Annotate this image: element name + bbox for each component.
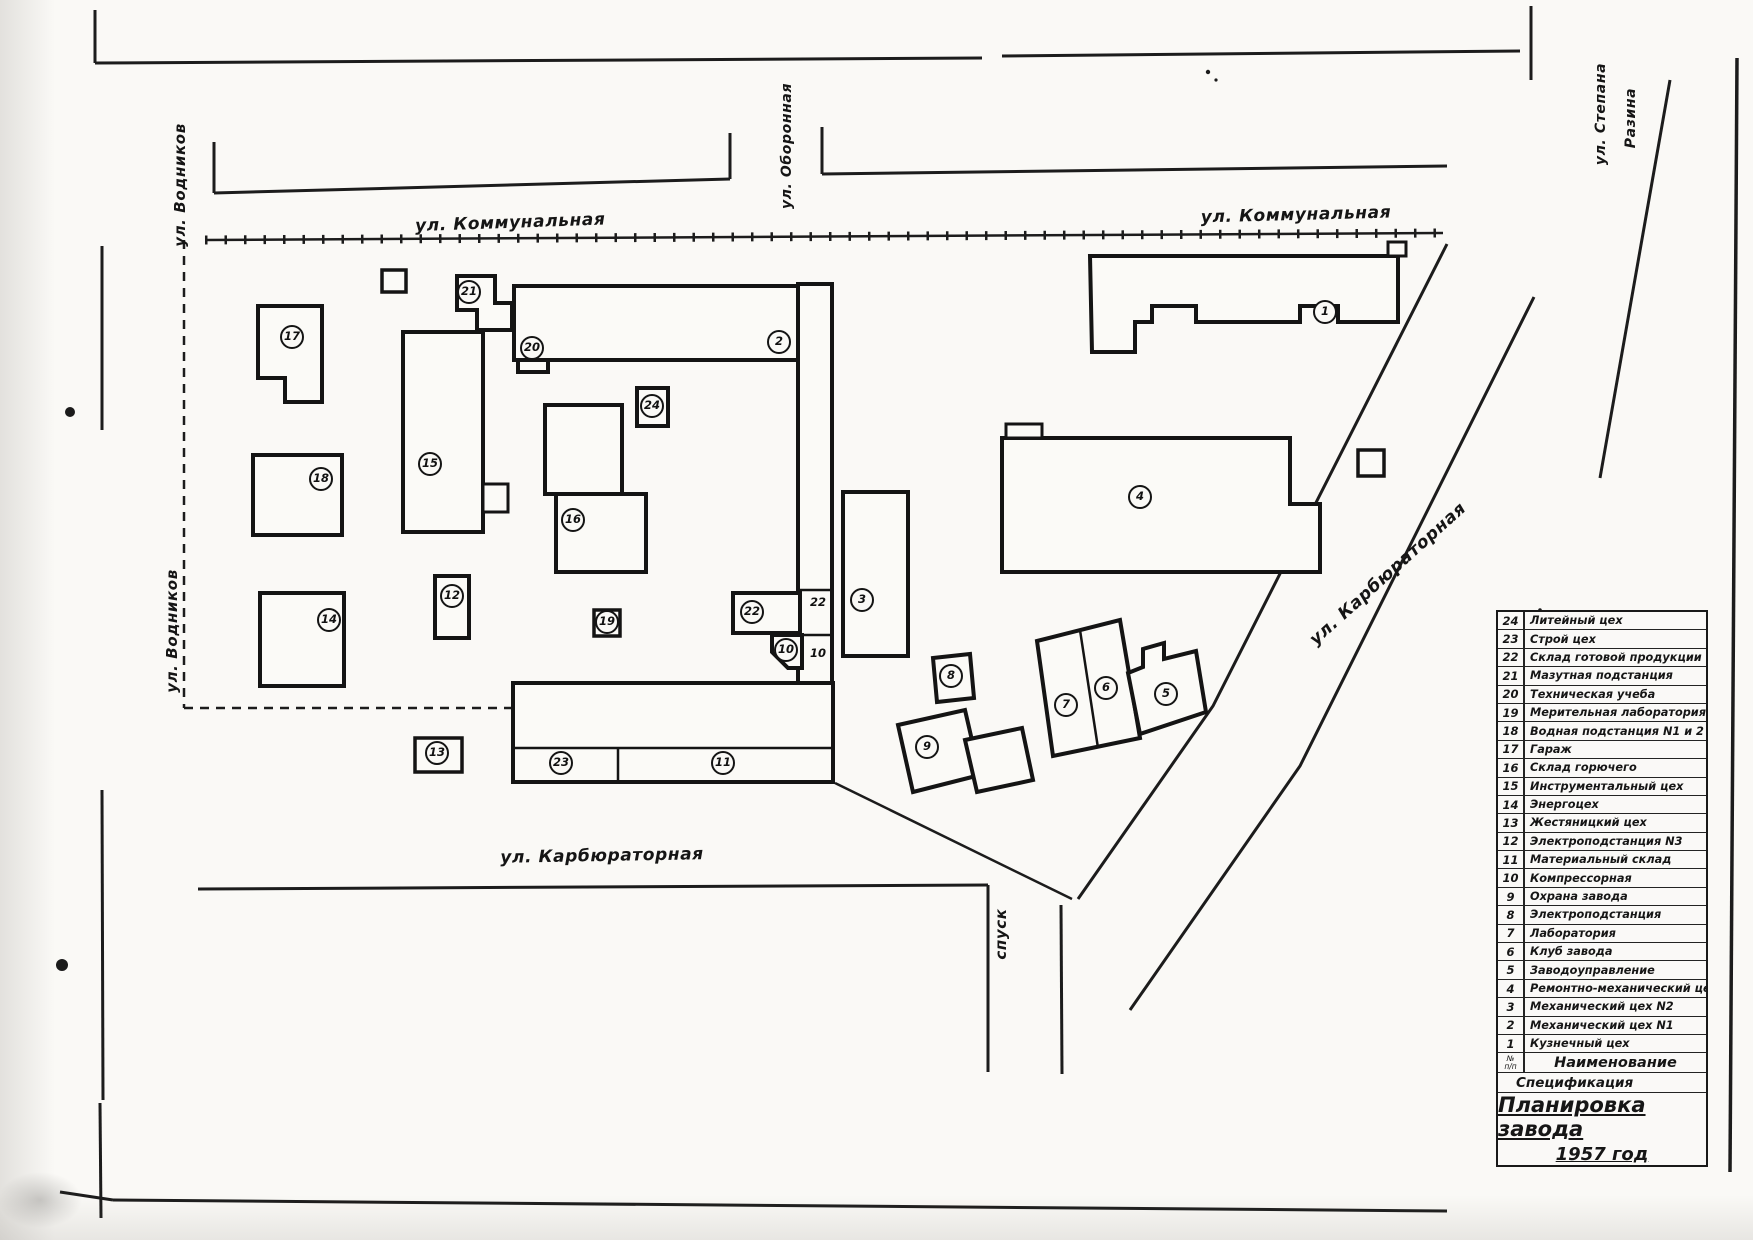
legend-row-14: 14Энергоцех (1498, 796, 1706, 814)
building-number-marker-10: 10 (774, 638, 798, 662)
legend-row-number: 6 (1498, 943, 1525, 960)
building-number-marker-21: 21 (457, 280, 481, 304)
legend-row-11: 11Материальный склад (1498, 851, 1706, 869)
building-18 (253, 455, 342, 535)
legend-row-label: Склад готовой продукции (1525, 649, 1706, 666)
building-1-forge (1090, 256, 1398, 352)
building-9-guard-b (965, 728, 1033, 792)
legend-rows: 24Литейный цех23Строй цех22Склад готовой… (1498, 612, 1706, 1053)
legend-row-number: 19 (1498, 704, 1525, 721)
building-number-marker-13: 13 (425, 741, 449, 765)
building-number-marker-14: 14 (317, 608, 341, 632)
legend-row-21: 21Мазутная подстанция (1498, 667, 1706, 685)
legend-row-number: 24 (1498, 612, 1525, 629)
legend-row-12: 12Электроподстанция N3 (1498, 833, 1706, 851)
legend-row-label: Заводоуправление (1525, 961, 1706, 978)
building-number-marker-23: 23 (549, 751, 573, 775)
building-small-right (1358, 450, 1384, 476)
building-number-marker-20: 20 (520, 336, 544, 360)
legend-row-number: 4 (1498, 980, 1525, 997)
building-number-marker-11: 11 (711, 751, 735, 775)
legend-row-1: 1Кузнечный цех (1498, 1035, 1706, 1053)
building-3 (843, 492, 908, 656)
building-number-marker-15: 15 (418, 452, 442, 476)
legend-row-label: Энергоцех (1525, 796, 1706, 813)
legend-row-number: 21 (1498, 667, 1525, 684)
legend-row-label: Строй цех (1525, 630, 1706, 647)
street-label-vodnikov-top: ул. Водников (171, 115, 189, 255)
legend-row-23: 23Строй цех (1498, 630, 1706, 648)
legend-row-label: Техническая учеба (1525, 686, 1706, 703)
building-number-marker-22: 22 (740, 600, 764, 624)
building-number-marker-7: 7 (1054, 693, 1078, 717)
legend-row-label: Мазутная подстанция (1525, 667, 1706, 684)
street-label-vodnikov-mid: ул. Водников (163, 561, 181, 701)
building-1-top-tab (1388, 242, 1406, 256)
legend-row-8: 8Электроподстанция (1498, 906, 1706, 924)
legend-row-number: 18 (1498, 722, 1525, 739)
legend-row-7: 7Лаборатория (1498, 925, 1706, 943)
legend-row-label: Кузнечный цех (1525, 1035, 1706, 1052)
building-16 (556, 494, 646, 572)
legend-row-label: Материальный склад (1525, 851, 1706, 868)
legend-row-13: 13Жестяницкий цех (1498, 814, 1706, 832)
legend-specification-label: Спецификация (1498, 1073, 1706, 1093)
legend-row-number: 3 (1498, 998, 1525, 1015)
building-4-repair-shop (1002, 438, 1320, 572)
building-2-main-hall (514, 286, 800, 360)
building-number-marker-17: 17 (280, 325, 304, 349)
legend-row-label: Гараж (1525, 741, 1706, 758)
building-number-marker-9: 9 (915, 735, 939, 759)
legend-header-row: № п/п Наименование (1498, 1053, 1706, 1073)
legend-row-2: 2Механический цех N1 (1498, 1017, 1706, 1035)
legend-row-label: Механический цех N1 (1525, 1017, 1706, 1034)
legend-row-24: 24Литейный цех (1498, 612, 1706, 630)
building-number-marker-6: 6 (1094, 676, 1118, 700)
legend-row-label: Лаборатория (1525, 925, 1706, 942)
building-mid-block (545, 405, 622, 494)
legend-row-number: 10 (1498, 869, 1525, 886)
legend-header-num: № п/п (1498, 1053, 1525, 1072)
street-label-oboronnaya: ул. Оборонная (779, 76, 795, 216)
legend-row-label: Инструментальный цех (1525, 778, 1706, 795)
building-number-marker-5: 5 (1154, 682, 1178, 706)
site-plan-drawing (0, 0, 1753, 1240)
building-number-marker-2: 2 (767, 330, 791, 354)
strip-section-label-10: 10 (810, 646, 826, 660)
building-15-annex (483, 484, 508, 512)
legend-row-label: Электроподстанция (1525, 906, 1706, 923)
legend-row-label: Охрана завода (1525, 888, 1706, 905)
legend-row-number: 20 (1498, 686, 1525, 703)
building-number-marker-19: 19 (595, 610, 619, 634)
drawing-year: 1957 год (1556, 1144, 1649, 1165)
legend-row-4: 4Ремонтно-механический цех (1498, 980, 1706, 998)
building-number-marker-16: 16 (561, 508, 585, 532)
legend-row-20: 20Техническая учеба (1498, 686, 1706, 704)
legend-row-number: 17 (1498, 741, 1525, 758)
legend-row-label: Литейный цех (1525, 612, 1706, 629)
legend-row-15: 15Инструментальный цех (1498, 778, 1706, 796)
legend-row-18: 18Водная подстанция N1 и 2 (1498, 722, 1706, 740)
building-number-marker-12: 12 (440, 584, 464, 608)
legend-row-label: Механический цех N2 (1525, 998, 1706, 1015)
legend-row-label: Водная подстанция N1 и 2 (1525, 722, 1706, 739)
legend-row-5: 5Заводоуправление (1498, 961, 1706, 979)
buildings (253, 242, 1406, 792)
street-label-spusk: спуск (992, 889, 1010, 979)
building-14 (260, 593, 344, 686)
building-number-marker-4: 4 (1128, 485, 1152, 509)
drawing-title-block: Планировка завода 1957 год (1498, 1093, 1706, 1165)
legend-row-label: Склад горючего (1525, 759, 1706, 776)
street-label-karbyuratornaya-bottom: ул. Карбюраторная (492, 844, 712, 868)
building-15-tall (403, 332, 483, 532)
legend-row-10: 10Компрессорная (1498, 869, 1706, 887)
legend-row-number: 1 (1498, 1035, 1525, 1052)
legend-row-label: Компрессорная (1525, 869, 1706, 886)
legend-row-16: 16Склад горючего (1498, 759, 1706, 777)
building-number-marker-8: 8 (939, 664, 963, 688)
legend-row-number: 15 (1498, 778, 1525, 795)
legend-row-number: 2 (1498, 1017, 1525, 1034)
building-17-garage (258, 306, 322, 402)
building-number-marker-24: 24 (640, 394, 664, 418)
legend-row-number: 7 (1498, 925, 1525, 942)
legend-row-label: Клуб завода (1525, 943, 1706, 960)
legend-row-number: 23 (1498, 630, 1525, 647)
building-number-marker-1: 1 (1313, 300, 1337, 324)
legend-row-label: Электроподстанция N3 (1525, 833, 1706, 850)
legend-row-label: Мерительная лаборатория (1525, 704, 1706, 721)
drawing-title: Планировка завода (1498, 1093, 1706, 1141)
specification-table: 24Литейный цех23Строй цех22Склад готовой… (1496, 610, 1708, 1167)
legend-row-label: Жестяницкий цех (1525, 814, 1706, 831)
legend-row-label: Ремонтно-механический цех (1525, 980, 1706, 997)
building-small-top (382, 270, 406, 292)
building-number-marker-3: 3 (850, 588, 874, 612)
legend-row-number: 5 (1498, 961, 1525, 978)
legend-row-number: 11 (1498, 851, 1525, 868)
legend-row-22: 22Склад готовой продукции (1498, 649, 1706, 667)
legend-row-6: 6Клуб завода (1498, 943, 1706, 961)
strip-section-label-22: 22 (810, 595, 826, 609)
legend-row-19: 19Мерительная лаборатория (1498, 704, 1706, 722)
street-label-razina: Разина (1623, 73, 1639, 163)
legend-row-number: 22 (1498, 649, 1525, 666)
legend-row-number: 12 (1498, 833, 1525, 850)
legend-row-number: 16 (1498, 759, 1525, 776)
legend-row-17: 17Гараж (1498, 741, 1706, 759)
legend-row-number: 9 (1498, 888, 1525, 905)
legend-row-number: 8 (1498, 906, 1525, 923)
scanned-factory-plan-page: ул. Водников ул. Водников ул. Оборонная … (0, 0, 1753, 1240)
legend-row-number: 13 (1498, 814, 1525, 831)
legend-row-3: 3Механический цех N2 (1498, 998, 1706, 1016)
legend-header-name: Наименование (1525, 1053, 1706, 1072)
building-number-marker-18: 18 (309, 467, 333, 491)
legend-row-9: 9Охрана завода (1498, 888, 1706, 906)
building-4-tab (1006, 424, 1042, 438)
legend-row-number: 14 (1498, 796, 1525, 813)
street-label-stepana: ул. Степана (1593, 54, 1609, 174)
building-gallery-strip (798, 284, 832, 683)
